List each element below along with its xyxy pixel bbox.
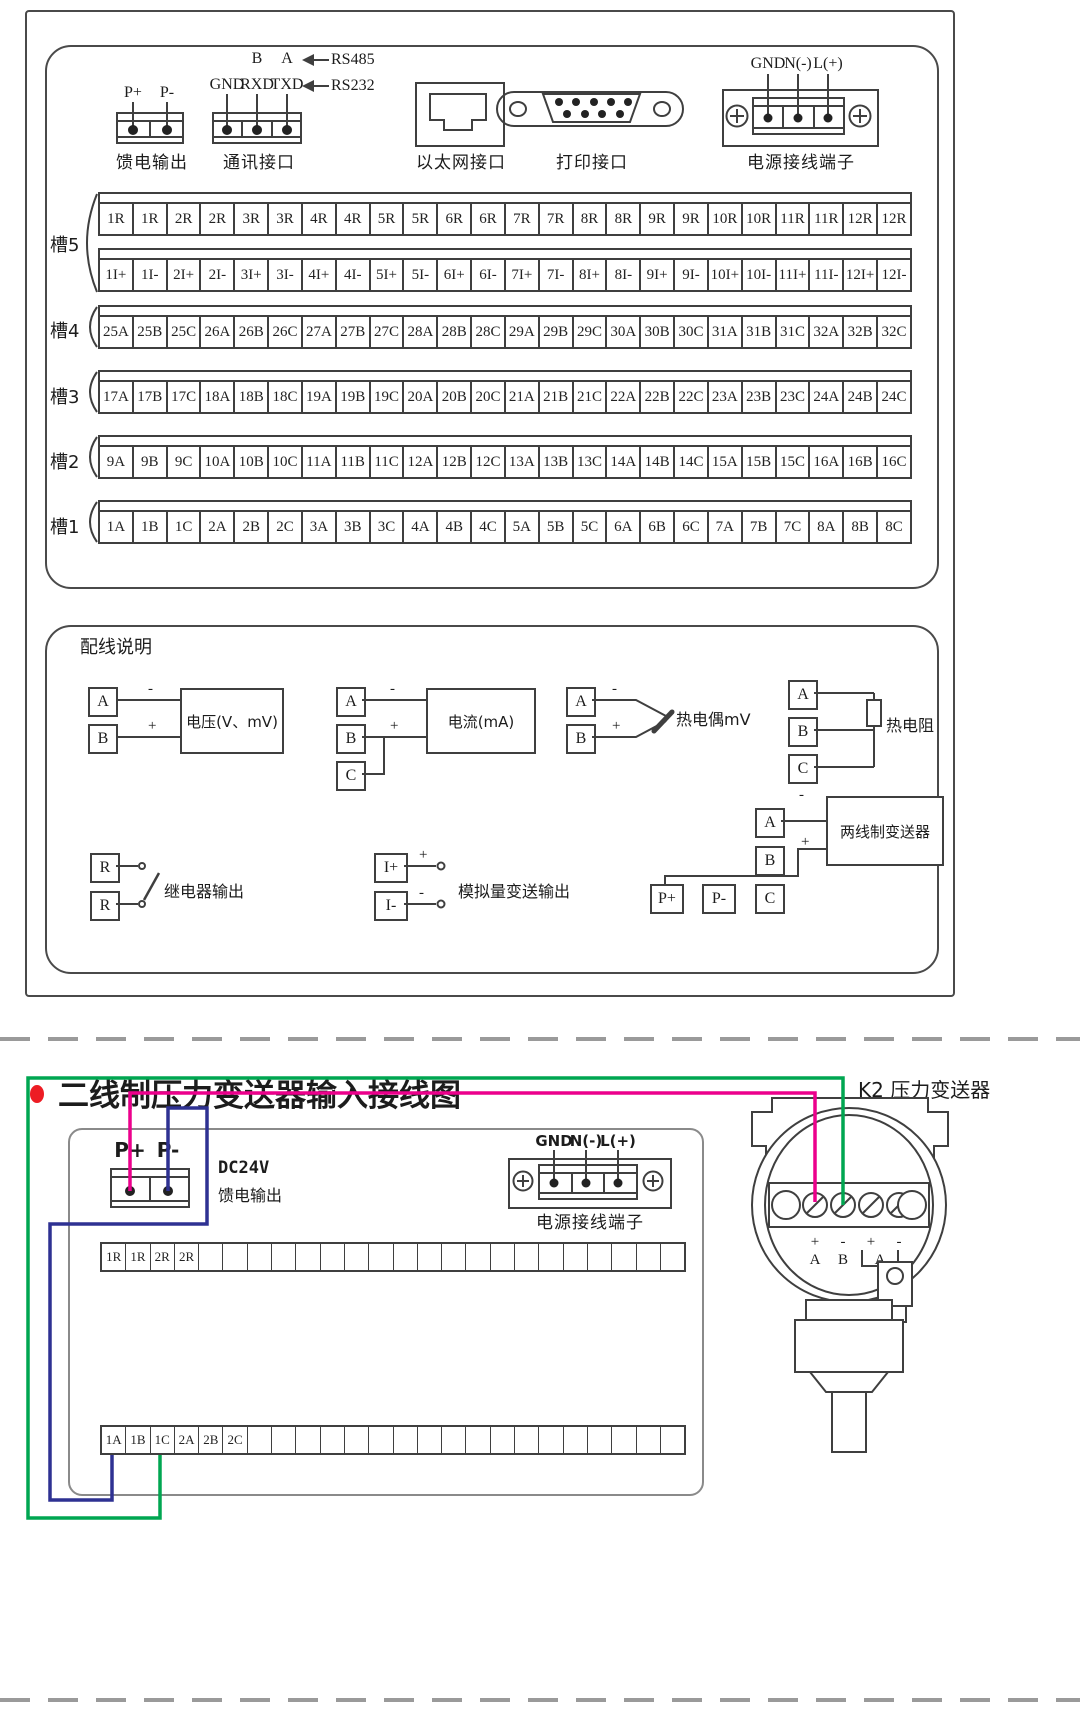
terminal-cell (345, 1427, 369, 1453)
terminal-cell: 3I- (269, 260, 303, 290)
terminal-cell: 16A (810, 447, 844, 477)
terminal-cell: 7A (709, 512, 743, 542)
terminal-cell: 19A (303, 382, 337, 412)
terminal-cell (321, 1427, 345, 1453)
terminal-cell: 1I+ (100, 260, 134, 290)
k2-transmitter-label: K2 压力变送器 (858, 1074, 990, 1103)
terminal-cell: 7R (540, 204, 574, 234)
title-bullet-icon (30, 1085, 44, 1103)
analog-label: 模拟量变送输出 (458, 878, 570, 902)
terminal-cell (418, 1427, 442, 1453)
analog-terminal-iplus: I+ (374, 853, 408, 883)
terminal-cell: 6R (472, 204, 506, 234)
terminal-cell: 2R (201, 204, 235, 234)
terminal-cell: 11C (371, 447, 405, 477)
terminal-cell (442, 1244, 466, 1270)
twowire-minus: - (799, 787, 804, 804)
terminal-cell: 8C (878, 512, 910, 542)
feed-terminal-block (116, 112, 184, 144)
terminal-cell: 13C (574, 447, 608, 477)
terminal-cell: 4B (438, 512, 472, 542)
terminal-cell: 29C (574, 317, 608, 347)
ethernet-jack (415, 82, 505, 147)
terminal-cell: 8A (810, 512, 844, 542)
current-minus: - (390, 681, 395, 698)
terminal-cell: 11I- (810, 260, 844, 290)
slot5-label: 槽5 (50, 231, 79, 257)
terminal-cell: 9R (675, 204, 709, 234)
terminal-cell: 14A (607, 447, 641, 477)
terminal-cell: 10R (709, 204, 743, 234)
terminal-cell (369, 1244, 393, 1270)
power-l-label: L(+) (808, 55, 848, 73)
terminal-cell: 3B (337, 512, 371, 542)
terminal-cell: 13A (506, 447, 540, 477)
terminal-cell: 31C (777, 317, 811, 347)
analog-terminal-iminus: I- (374, 891, 408, 921)
terminal-slot (754, 107, 784, 127)
terminal-cell: 2C (223, 1427, 247, 1453)
terminal-cell: 25A (100, 317, 134, 347)
terminal-cell: 12R (844, 204, 878, 234)
terminal-cell (491, 1244, 515, 1270)
terminal-cell: 9C (168, 447, 202, 477)
feed-p-minus-label: P- (147, 84, 187, 102)
terminal-cell (248, 1244, 272, 1270)
rtd-terminal-a: A (788, 680, 818, 710)
terminal-cell: 22B (641, 382, 675, 412)
terminal-cell: 28A (404, 317, 438, 347)
terminal-cell (466, 1427, 490, 1453)
twowire-terminal-c: C (755, 884, 785, 914)
terminal-cell: 17A (100, 382, 134, 412)
terminal-cell: 19C (371, 382, 405, 412)
terminal-slot (151, 122, 182, 136)
terminal-cell (442, 1427, 466, 1453)
terminal-cell: 8I+ (574, 260, 608, 290)
transmitter-sign-3: + (867, 1234, 875, 1250)
twowire-terminal-a: A (755, 808, 785, 838)
terminal-cell (466, 1244, 490, 1270)
terminal-cell (515, 1244, 539, 1270)
terminal-cell: 1B (134, 512, 168, 542)
terminal-cell: 11I+ (777, 260, 811, 290)
terminal-cell: 6I- (472, 260, 506, 290)
terminal-cell: 6I+ (438, 260, 472, 290)
rtd-terminal-c: C (788, 754, 818, 784)
terminal-cell: 3I+ (235, 260, 269, 290)
terminal-cell: 3R (269, 204, 303, 234)
transmitter-sign-4: - (897, 1234, 902, 1250)
relay-terminal-r2: R (90, 891, 120, 921)
transmitter-letter-a1: A (810, 1252, 821, 1268)
terminal-cell: 8B (844, 512, 878, 542)
terminal-slot (784, 107, 814, 127)
slot1-strip: 1A1B1C2A2B2C3A3B3C4A4B4C5A5B5C6A6B6C7A7B… (98, 500, 912, 544)
wiring-title: 配线说明 (80, 633, 152, 659)
bottom-power-block (538, 1164, 638, 1200)
terminal-cell: 6A (607, 512, 641, 542)
terminal-cell: 2I+ (168, 260, 202, 290)
terminal-cell: 4R (337, 204, 371, 234)
terminal-cell: 30C (675, 317, 709, 347)
terminal-cell (539, 1427, 563, 1453)
terminal-cell (588, 1427, 612, 1453)
terminal-cell: 7I+ (506, 260, 540, 290)
voltage-terminal-b: B (88, 724, 118, 754)
terminal-slot (118, 122, 151, 136)
voltage-box: 电压(V、mV) (180, 688, 284, 754)
terminal-cell: 11R (777, 204, 811, 234)
power-terminal-block (752, 97, 845, 135)
bracket-icon (862, 1250, 898, 1266)
wiring-diagram-page: P+ P- 馈电输出 B A GND RXD TXD RS485 RS232 通… (0, 0, 1080, 1722)
twowire-box: 两线制变送器 (826, 796, 944, 866)
terminal-cell: 8R (607, 204, 641, 234)
terminal-cell: 30B (641, 317, 675, 347)
terminal-cell: 15C (777, 447, 811, 477)
comm-terminal-block (212, 112, 302, 144)
terminal-cell: 20C (472, 382, 506, 412)
terminal-cell: 8I- (607, 260, 641, 290)
bottom-strip-upper: 1R1R2R2R (100, 1242, 686, 1272)
terminal-cell: 12I- (878, 260, 910, 290)
terminal-cell: 2A (201, 512, 235, 542)
terminal-cell: 5R (404, 204, 438, 234)
slot5-strip-r: 1R1R2R2R3R3R4R4R5R5R6R6R7R7R8R8R9R9R10R1… (98, 192, 912, 236)
terminal-cell: 5I- (404, 260, 438, 290)
terminal-cell: 11A (303, 447, 337, 477)
terminal-cell: 6B (641, 512, 675, 542)
terminal-cell: 12A (404, 447, 438, 477)
terminal-cell: 16B (844, 447, 878, 477)
analog-plus: + (419, 847, 427, 864)
terminal-cell: 10R (743, 204, 777, 234)
slot5-strip-i: 1I+1I-2I+2I-3I+3I-4I+4I-5I+5I-6I+6I-7I+7… (98, 248, 912, 292)
terminal-cell: 11R (810, 204, 844, 234)
terminal-cell (394, 1427, 418, 1453)
terminal-cell: 14C (675, 447, 709, 477)
terminal-cell (612, 1427, 636, 1453)
terminal-cell (612, 1244, 636, 1270)
terminal-cell: 25B (134, 317, 168, 347)
voltage-plus: + (148, 718, 156, 735)
terminal-cell (637, 1244, 661, 1270)
terminal-cell: 1I- (134, 260, 168, 290)
terminal-cell: 18B (235, 382, 269, 412)
terminal-cell: 2R (151, 1244, 175, 1270)
terminal-cell (199, 1244, 223, 1270)
tc-label: 热电偶mV (676, 706, 751, 730)
terminal-cell: 15A (709, 447, 743, 477)
terminal-cell (296, 1244, 320, 1270)
terminal-slot (151, 1178, 188, 1200)
terminal-cell (223, 1244, 247, 1270)
terminal-cell: 21C (574, 382, 608, 412)
current-terminal-c: C (336, 761, 366, 791)
terminal-cell: 6R (438, 204, 472, 234)
terminal-cell: 23C (777, 382, 811, 412)
terminal-cell (248, 1427, 272, 1453)
terminal-cell: 6C (675, 512, 709, 542)
terminal-cell: 7I- (540, 260, 574, 290)
terminal-cell: 17C (168, 382, 202, 412)
slot2-strip: 9A9B9C10A10B10C11A11B11C12A12B12C13A13B1… (98, 435, 912, 479)
terminal-cell: 19B (337, 382, 371, 412)
terminal-cell: 11B (337, 447, 371, 477)
slot3-label: 槽3 (50, 383, 79, 409)
tc-terminal-a: A (566, 687, 596, 717)
terminal-cell: 21B (540, 382, 574, 412)
terminal-cell (418, 1244, 442, 1270)
terminal-cell: 26C (269, 317, 303, 347)
terminal-cell: 26B (235, 317, 269, 347)
wiring-note-panel (45, 625, 939, 974)
terminal-cell: 5C (574, 512, 608, 542)
terminal-cell (564, 1244, 588, 1270)
terminal-cell: 29A (506, 317, 540, 347)
terminal-cell: 32C (878, 317, 910, 347)
terminal-cell: 4A (404, 512, 438, 542)
terminal-cell: 14B (641, 447, 675, 477)
terminal-slot (112, 1178, 151, 1200)
current-terminal-a: A (336, 687, 366, 717)
terminal-cell: 1R (102, 1244, 126, 1270)
terminal-cell: 4I+ (303, 260, 337, 290)
terminal-slot (815, 107, 843, 127)
terminal-cell: 4I- (337, 260, 371, 290)
terminal-cell: 3R (235, 204, 269, 234)
terminal-cell (564, 1427, 588, 1453)
terminal-cell: 13B (540, 447, 574, 477)
power-caption: 电源接线端子 (747, 148, 855, 173)
terminal-cell: 4C (472, 512, 506, 542)
terminal-slot (273, 122, 300, 136)
bottom-feed-pminus: P- (146, 1138, 190, 1162)
tc-terminal-b: B (566, 724, 596, 754)
terminal-cell (637, 1427, 661, 1453)
terminal-cell: 2B (235, 512, 269, 542)
terminal-cell: 10I+ (709, 260, 743, 290)
terminal-cell (539, 1244, 563, 1270)
terminal-cell: 2B (199, 1427, 223, 1453)
terminal-cell: 1A (100, 512, 134, 542)
current-plus: + (390, 718, 398, 735)
twowire-terminal-pminus: P- (702, 884, 736, 914)
transmitter-letter-a2: A (875, 1252, 886, 1268)
ethernet-caption: 以太网接口 (416, 148, 506, 173)
terminal-cell: 12R (878, 204, 910, 234)
terminal-cell: 1A (102, 1427, 126, 1453)
relay-terminal-r1: R (90, 853, 120, 883)
terminal-cell: 31B (743, 317, 777, 347)
dashed-divider-bottom (0, 1698, 1080, 1702)
terminal-cell: 22A (607, 382, 641, 412)
terminal-cell: 30A (607, 317, 641, 347)
terminal-cell: 16C (878, 447, 910, 477)
terminal-cell: 18A (201, 382, 235, 412)
voltage-minus: - (148, 681, 153, 698)
terminal-cell: 22C (675, 382, 709, 412)
terminal-cell (369, 1427, 393, 1453)
pressure-transmitter: + - + - A B A (752, 1098, 948, 1452)
dashed-divider-top (0, 1037, 1080, 1041)
voltage-terminal-a: A (88, 687, 118, 717)
terminal-cell (296, 1427, 320, 1453)
terminal-cell (345, 1244, 369, 1270)
terminal-slot (605, 1174, 636, 1192)
terminal-cell: 24B (844, 382, 878, 412)
rs485-label: RS485 (331, 51, 375, 69)
terminal-cell: 2R (168, 204, 202, 234)
terminal-cell: 9I+ (641, 260, 675, 290)
bottom-feed-caption: 馈电输出 (218, 1182, 282, 1206)
terminal-cell: 31A (709, 317, 743, 347)
slot4-label: 槽4 (50, 317, 79, 343)
terminal-slot (573, 1174, 606, 1192)
bottom-power-caption: 电源接线端子 (536, 1208, 644, 1233)
terminal-cell: 1R (126, 1244, 150, 1270)
terminal-cell: 27B (337, 317, 371, 347)
terminal-cell (661, 1427, 684, 1453)
terminal-cell: 1R (100, 204, 134, 234)
terminal-cell (491, 1427, 515, 1453)
terminal-cell: 3C (371, 512, 405, 542)
terminal-cell (588, 1244, 612, 1270)
rs232-label: RS232 (331, 77, 375, 95)
terminal-slot (243, 122, 272, 136)
rtd-terminal-b: B (788, 717, 818, 747)
terminal-cell: 24C (878, 382, 910, 412)
terminal-cell: 2A (175, 1427, 199, 1453)
terminal-cell: 12I+ (844, 260, 878, 290)
terminal-cell (394, 1244, 418, 1270)
terminal-cell (272, 1427, 296, 1453)
twowire-terminal-b: B (755, 846, 785, 876)
tc-plus: + (612, 718, 620, 735)
terminal-cell: 5R (371, 204, 405, 234)
terminal-cell: 9A (100, 447, 134, 477)
terminal-cell: 3A (303, 512, 337, 542)
comm-caption: 通讯接口 (223, 148, 295, 173)
terminal-cell: 1R (134, 204, 168, 234)
terminal-cell: 5I+ (371, 260, 405, 290)
terminal-cell: 7C (777, 512, 811, 542)
terminal-cell: 1C (151, 1427, 175, 1453)
terminal-cell: 25C (168, 317, 202, 347)
terminal-cell: 7B (743, 512, 777, 542)
tc-minus: - (612, 681, 617, 698)
terminal-cell: 28C (472, 317, 506, 347)
terminal-cell: 29B (540, 317, 574, 347)
terminal-cell: 1C (168, 512, 202, 542)
terminal-cell: 9I- (675, 260, 709, 290)
terminal-cell: 9B (134, 447, 168, 477)
slot1-label: 槽1 (50, 513, 79, 539)
analog-minus: - (419, 885, 424, 902)
terminal-cell: 4R (303, 204, 337, 234)
dc24v-label: DC24V (218, 1158, 269, 1178)
terminal-cell: 32A (810, 317, 844, 347)
relay-label: 继电器输出 (164, 878, 244, 902)
terminal-cell: 10C (269, 447, 303, 477)
terminal-cell: 17B (134, 382, 168, 412)
terminal-cell: 10B (235, 447, 269, 477)
terminal-cell: 21A (506, 382, 540, 412)
terminal-cell: 28B (438, 317, 472, 347)
terminal-cell: 24A (810, 382, 844, 412)
current-box: 电流(mA) (426, 688, 536, 754)
rtd-label: 热电阻 (886, 712, 934, 736)
comm-a-label: A (267, 50, 307, 68)
terminal-slot (214, 122, 243, 136)
terminal-cell: 7R (506, 204, 540, 234)
terminal-cell: 12B (438, 447, 472, 477)
terminal-cell: 5A (506, 512, 540, 542)
transmitter-sign-1: + (811, 1234, 819, 1250)
bottom-feed-block (110, 1168, 190, 1208)
terminal-cell: 20B (438, 382, 472, 412)
terminal-cell: 32B (844, 317, 878, 347)
terminal-cell (661, 1244, 684, 1270)
twowire-terminal-pplus: P+ (650, 884, 684, 914)
terminal-cell: 8R (574, 204, 608, 234)
bottom-title: 二线制压力变送器输入接线图 (58, 1070, 461, 1115)
terminal-cell: 12C (472, 447, 506, 477)
terminal-cell: 23A (709, 382, 743, 412)
terminal-cell (321, 1244, 345, 1270)
terminal-cell: 2C (269, 512, 303, 542)
terminal-cell: 15B (743, 447, 777, 477)
slot2-label: 槽2 (50, 448, 79, 474)
terminal-cell: 18C (269, 382, 303, 412)
terminal-cell: 5B (540, 512, 574, 542)
twowire-plus: + (801, 834, 809, 851)
current-terminal-b: B (336, 724, 366, 754)
comm-txd-label: TXD (267, 76, 307, 94)
terminal-cell: 23B (743, 382, 777, 412)
terminal-cell: 10A (201, 447, 235, 477)
terminal-cell (515, 1427, 539, 1453)
transmitter-sign-2: - (841, 1234, 846, 1250)
terminal-cell: 20A (404, 382, 438, 412)
terminal-cell: 27C (371, 317, 405, 347)
printer-caption: 打印接口 (556, 148, 628, 173)
terminal-cell: 27A (303, 317, 337, 347)
transmitter-letter-b: B (838, 1252, 848, 1268)
terminal-cell (272, 1244, 296, 1270)
terminal-cell: 2R (175, 1244, 199, 1270)
terminal-slot (540, 1174, 573, 1192)
terminal-cell: 1B (126, 1427, 150, 1453)
slot3-strip: 17A17B17C18A18B18C19A19B19C20A20B20C21A2… (98, 370, 912, 414)
feed-caption: 馈电输出 (116, 148, 188, 173)
slot4-strip: 25A25B25C26A26B26C27A27B27C28A28B28C29A2… (98, 305, 912, 349)
terminal-cell: 26A (201, 317, 235, 347)
bottom-strip-lower: 1A1B1C2A2B2C (100, 1425, 686, 1455)
terminal-cell: 2I- (201, 260, 235, 290)
bottom-power-l: L(+) (598, 1132, 638, 1150)
terminal-cell: 10I- (743, 260, 777, 290)
terminal-cell: 9R (641, 204, 675, 234)
